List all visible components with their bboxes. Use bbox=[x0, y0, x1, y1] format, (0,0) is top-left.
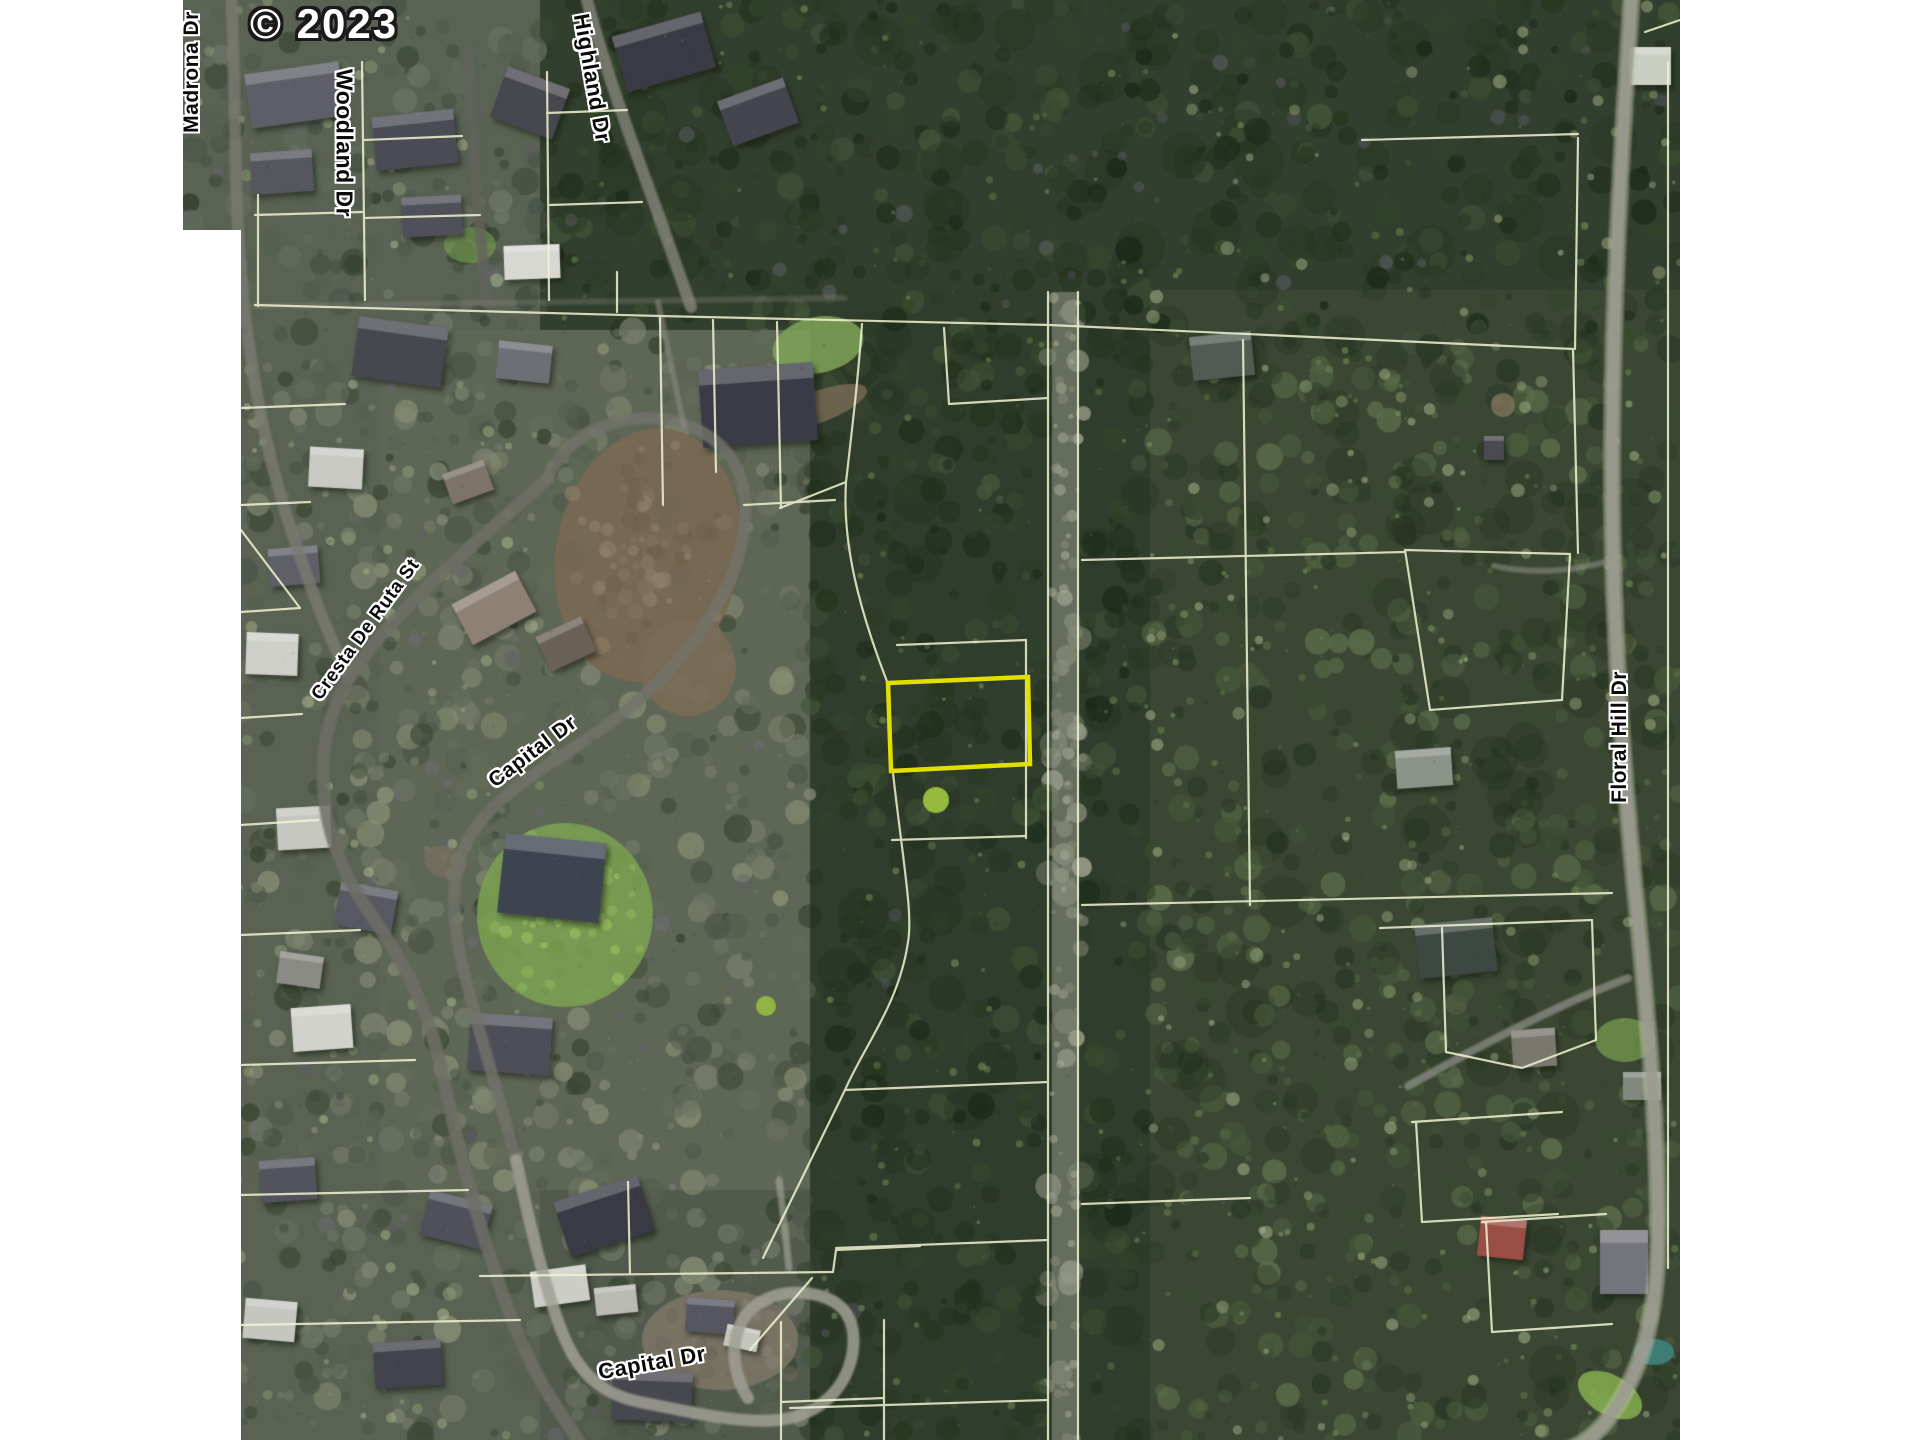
parcel-line bbox=[845, 482, 888, 684]
parcel-line bbox=[763, 1090, 845, 1258]
parcel-line bbox=[547, 72, 549, 300]
parcel-line bbox=[362, 62, 365, 300]
parcel-line bbox=[241, 1190, 468, 1195]
road-floral-hill-dr bbox=[1548, 0, 1658, 1440]
road-capital-dr-south bbox=[516, 1160, 853, 1421]
parcel-line bbox=[628, 1182, 630, 1274]
parcel-line bbox=[845, 773, 909, 1090]
parcel-line bbox=[1082, 552, 1405, 560]
parcel-line bbox=[1486, 1222, 1492, 1332]
parcel-line bbox=[241, 930, 360, 935]
parcel-line bbox=[1492, 1324, 1612, 1332]
subject-parcel-outline bbox=[888, 677, 1030, 771]
listing-screenshot: Madrona Dr Woodland Dr Highland Dr Crest… bbox=[0, 0, 1920, 1440]
parcel-line bbox=[255, 305, 1573, 349]
parcel-line bbox=[713, 320, 716, 472]
parcel-line bbox=[1243, 340, 1250, 905]
parcel-line bbox=[1575, 138, 1578, 349]
parcel-line bbox=[836, 1240, 1048, 1248]
parcel-line bbox=[1380, 920, 1592, 928]
parcel-line bbox=[1573, 349, 1578, 553]
parcel-line bbox=[777, 322, 781, 508]
parcel-line bbox=[892, 836, 1026, 840]
parcel-line bbox=[846, 324, 862, 482]
parcel-line bbox=[364, 136, 462, 140]
parcel-overlay bbox=[0, 0, 1680, 1440]
parcel-line bbox=[480, 1272, 833, 1276]
parcel-line bbox=[364, 215, 480, 218]
parcel-line bbox=[1416, 1122, 1422, 1222]
street-label-floral-hill-dr: Floral Hill Dr bbox=[1608, 671, 1632, 803]
street-label-woodland-dr: Woodland Dr bbox=[331, 69, 358, 217]
street-label-madrona-dr: Madrona Dr bbox=[180, 11, 204, 133]
aerial-parcel-map: Madrona Dr Woodland Dr Highland Dr Crest… bbox=[0, 0, 1680, 1440]
road-highland-dr bbox=[585, 0, 691, 307]
parcel-line bbox=[1362, 134, 1578, 140]
driveway bbox=[1494, 560, 1612, 571]
parcel-line bbox=[944, 328, 949, 404]
parcel-line bbox=[241, 502, 310, 505]
parcel-line bbox=[1442, 928, 1446, 1052]
parcel-line bbox=[1592, 920, 1596, 1040]
white-margin bbox=[1680, 0, 1920, 1440]
parcel-line bbox=[1082, 1198, 1250, 1204]
parcel-line bbox=[833, 1246, 920, 1272]
parcel-line bbox=[241, 608, 300, 612]
parcel-line bbox=[660, 318, 663, 505]
parcel-line bbox=[241, 714, 302, 718]
road-woodland-dr bbox=[468, 52, 487, 302]
parcel-lines bbox=[241, 20, 1680, 1440]
parcel-line bbox=[845, 1082, 1048, 1090]
parcel-line bbox=[1645, 20, 1680, 32]
parcel-line bbox=[780, 482, 846, 508]
parcel-line bbox=[1405, 550, 1570, 710]
parcel-line bbox=[1082, 893, 1612, 905]
parcel-line bbox=[241, 820, 318, 825]
parcel-line bbox=[949, 398, 1048, 404]
parcel-line bbox=[897, 640, 1026, 645]
copyright-watermark: © 2023 bbox=[250, 0, 398, 48]
road-floral-hill-dr-edge bbox=[1548, 0, 1658, 1440]
parcel-line bbox=[241, 1320, 520, 1325]
parcel-line bbox=[241, 1060, 415, 1065]
parcel-line bbox=[1412, 1112, 1562, 1122]
parcel-line bbox=[550, 202, 642, 205]
